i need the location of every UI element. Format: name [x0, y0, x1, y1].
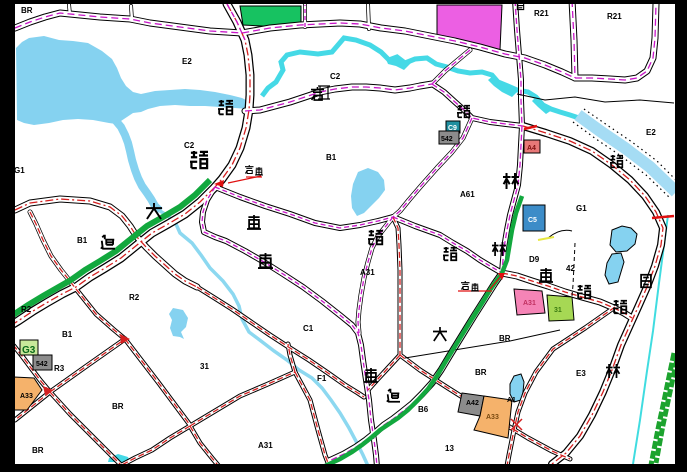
svg-text:G1: G1: [576, 204, 587, 213]
svg-text:R2: R2: [129, 293, 140, 302]
svg-text:R21: R21: [607, 12, 622, 21]
svg-text:542: 542: [36, 361, 48, 368]
svg-text:E3: E3: [576, 369, 586, 378]
svg-text:A4: A4: [527, 145, 536, 152]
svg-text:C5: C5: [528, 217, 537, 224]
svg-text:E2: E2: [182, 57, 192, 66]
svg-text:42: 42: [566, 264, 575, 273]
svg-text:B1: B1: [77, 236, 88, 245]
svg-text:B6: B6: [418, 405, 429, 414]
svg-text:F1: F1: [317, 374, 327, 383]
svg-text:C9: C9: [448, 125, 457, 132]
svg-text:13: 13: [445, 444, 454, 453]
svg-text:A1: A1: [507, 397, 516, 404]
svg-text:R2: R2: [21, 305, 32, 314]
svg-text:C2: C2: [184, 141, 195, 150]
svg-text:R21: R21: [534, 9, 549, 18]
svg-text:A31: A31: [258, 441, 273, 450]
svg-text:31: 31: [200, 362, 209, 371]
svg-text:31: 31: [554, 307, 562, 314]
svg-text:G1: G1: [14, 166, 25, 175]
svg-text:542: 542: [441, 136, 453, 143]
svg-text:D9: D9: [529, 255, 540, 264]
svg-text:BR: BR: [32, 446, 44, 455]
svg-text:A31: A31: [360, 268, 375, 277]
svg-text:BR: BR: [475, 368, 487, 377]
svg-text:C1: C1: [303, 324, 314, 333]
svg-text:E2: E2: [646, 128, 656, 137]
svg-text:A33: A33: [486, 414, 499, 421]
svg-text:A61: A61: [460, 190, 475, 199]
svg-text:R3: R3: [54, 364, 65, 373]
svg-text:BR: BR: [21, 6, 33, 15]
svg-text:C2: C2: [330, 72, 341, 81]
svg-text:A31: A31: [523, 300, 536, 307]
svg-text:BR: BR: [499, 334, 511, 343]
svg-text:G3: G3: [22, 345, 36, 356]
svg-text:BR: BR: [112, 402, 124, 411]
svg-text:B1: B1: [62, 330, 73, 339]
svg-text:A33: A33: [20, 393, 33, 400]
svg-text:B1: B1: [326, 153, 337, 162]
svg-text:A42: A42: [466, 400, 479, 407]
